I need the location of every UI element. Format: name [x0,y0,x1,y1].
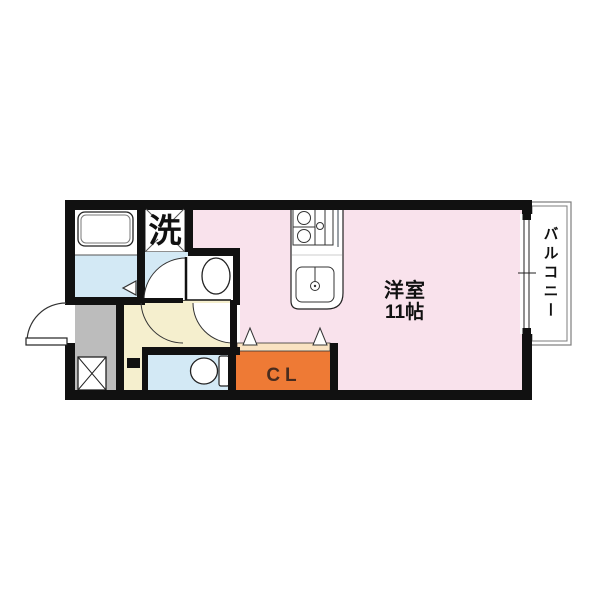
washer-label: 洗 [149,212,182,249]
kitchen-counter [291,205,343,309]
shoe-cabinet [78,357,106,390]
balcony-window [518,214,536,334]
wash-basin [202,258,230,294]
hallway-strip [124,347,142,390]
toilet [191,356,230,386]
closet-label: CL [266,365,301,386]
main-room-label: 洋室 [384,278,426,302]
kitchen-sink [296,267,334,302]
balcony-label: バルコニー [542,226,559,321]
floorplan-canvas: 洗 洋室 11帖 CL バルコニー [0,0,600,600]
stove [293,209,333,245]
bathtub [78,212,133,246]
room-bath-floor [73,255,137,298]
main-room-size-label: 11帖 [385,300,424,323]
floorplan-drawing: 洗 洋室 11帖 CL バルコニー [0,0,600,600]
entrance-door [26,303,67,345]
